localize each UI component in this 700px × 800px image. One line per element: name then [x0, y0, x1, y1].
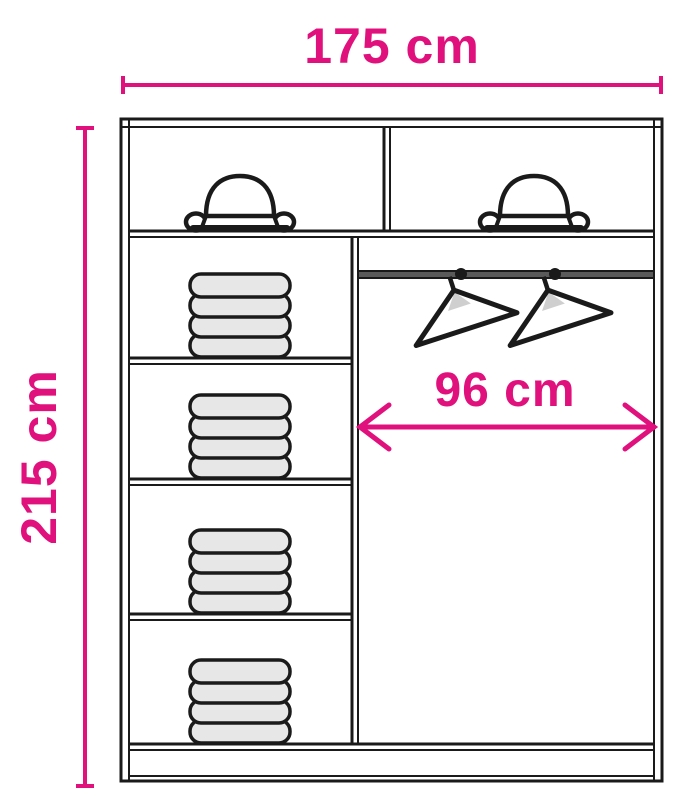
folded-clothes-stack: [190, 395, 290, 478]
hanging-width-label: 96 cm: [434, 364, 575, 417]
hanger-rail: [358, 271, 654, 278]
height-dimension: 215 cm: [11, 128, 94, 786]
folded-clothes-stack: [190, 660, 290, 743]
width-dimension: 175 cm: [123, 18, 661, 94]
diagram-canvas: 175 cm 215 cm: [0, 0, 700, 800]
hanger-hook-knob: [550, 269, 561, 280]
folded-clothes-stack: [190, 274, 290, 357]
folded-clothes-stack: [190, 530, 290, 613]
wardrobe-dimension-diagram: 175 cm 215 cm: [0, 0, 700, 800]
wardrobe: [121, 119, 662, 781]
height-dimension-label: 215 cm: [11, 369, 67, 545]
width-dimension-label: 175 cm: [304, 18, 480, 74]
hanger-hook-knob: [456, 269, 467, 280]
